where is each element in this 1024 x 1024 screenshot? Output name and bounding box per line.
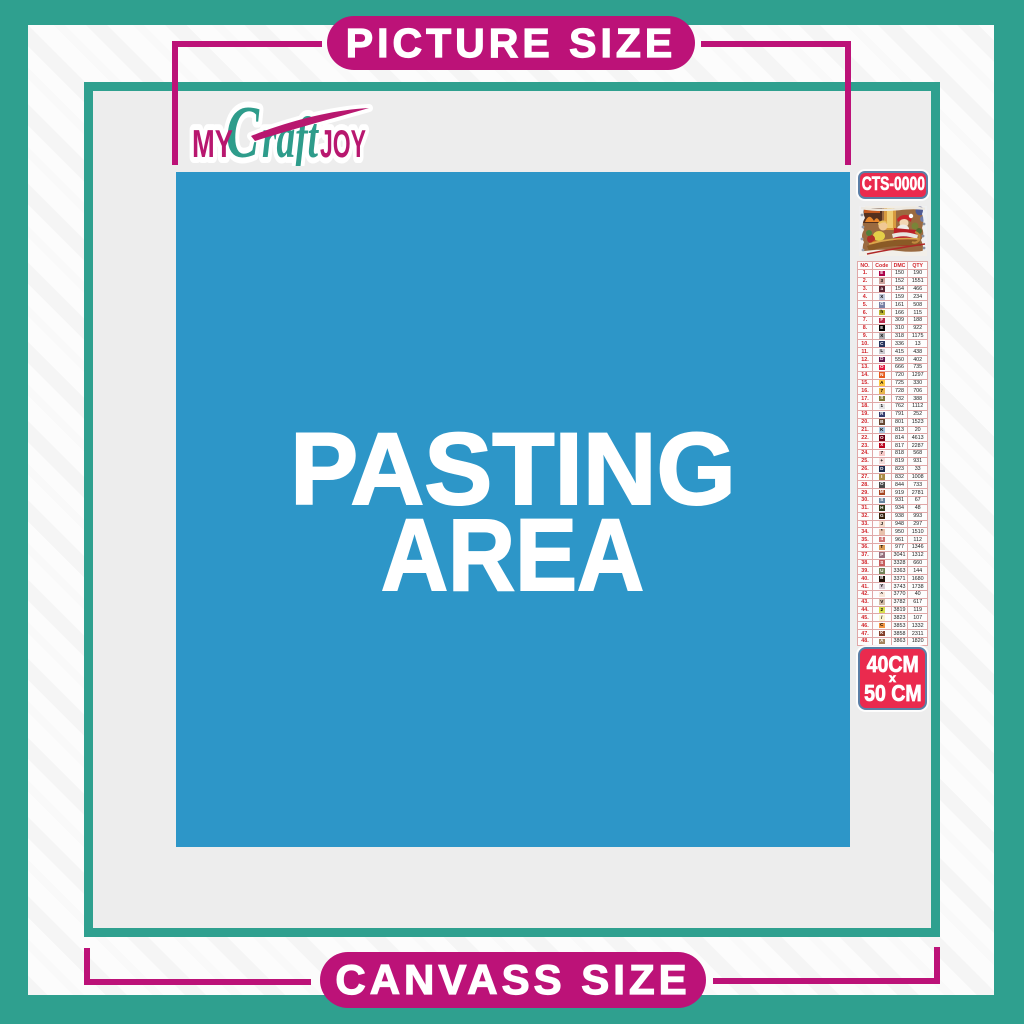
svg-text:MY: MY (192, 123, 233, 166)
svg-text:JOY: JOY (320, 123, 366, 166)
